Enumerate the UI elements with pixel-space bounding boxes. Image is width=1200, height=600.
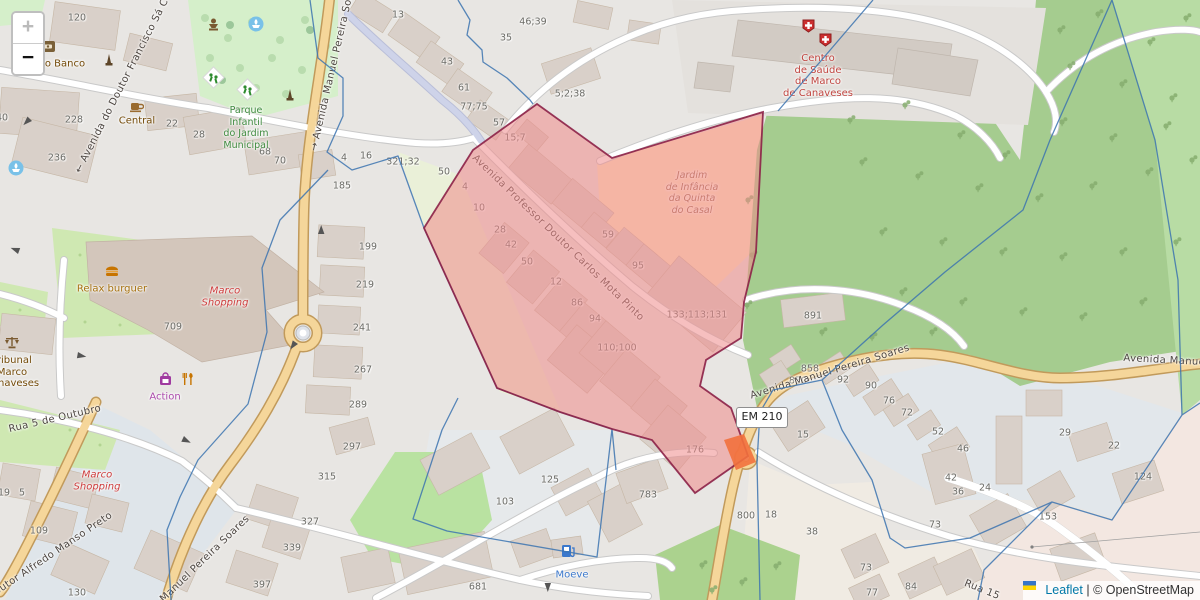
street-avenida-manuel-pereira-e: Avenida Manuel Pe (1123, 353, 1200, 369)
house-number: 68 (259, 147, 271, 158)
house-number: 199 (359, 242, 377, 253)
house-number: 35 (500, 33, 512, 44)
house-number: 120 (68, 13, 86, 24)
house-number: 28 (193, 130, 205, 141)
ukraine-flag-icon (1029, 586, 1042, 595)
street-avenida-carlos-mota-pinto: Avenida Professor Doutor Carlos Mota Pin… (470, 153, 646, 324)
house-number: 267 (354, 365, 372, 376)
house-number: 124 (1134, 472, 1152, 483)
house-number: 28 (494, 225, 506, 236)
street-avenida-manuel-pereira-n: → Avenida Manuel Pereira Soares (309, 0, 360, 152)
house-number: 4 (341, 153, 347, 164)
house-number: 86 (571, 298, 583, 309)
house-number: 29 (1059, 428, 1071, 439)
house-number: 339 (283, 543, 301, 554)
osm-link[interactable]: © OpenStreetMap (1093, 583, 1194, 597)
house-number: 52 (932, 427, 944, 438)
house-number: 13 (392, 10, 404, 21)
house-number: 19 (0, 488, 10, 499)
poi-novo-banco: vo Banco (39, 58, 85, 70)
street-rua-se: Rua 15 (963, 578, 1002, 600)
house-number: 315 (318, 472, 336, 483)
poi-tribunal: TribunalMarcoCanaveses (0, 355, 39, 390)
house-number: 241 (353, 323, 371, 334)
house-number: 133;113;131 (667, 310, 728, 321)
house-number: 42 (945, 473, 957, 484)
street-avenida-francisco-sa: ← Avenida do Doutor Francisco Sá C (73, 0, 171, 175)
poi-jardim-infancia: Jardimde Infânciada Quintado Casal (666, 170, 719, 216)
house-number: 219 (356, 280, 374, 291)
house-number: 73 (860, 563, 872, 574)
house-number: 12 (550, 277, 562, 288)
house-number: 77;75 (460, 102, 487, 113)
map-labels: 12040228222823668701346;3935436177;75575… (0, 0, 1200, 600)
house-number: 36 (952, 487, 964, 498)
house-number: 84 (905, 582, 917, 593)
poi-marco-shopping-1: MarcoShopping (202, 286, 249, 309)
house-number: 709 (164, 322, 182, 333)
house-number: 43 (441, 57, 453, 68)
house-number: 22 (166, 119, 178, 130)
house-number: 153 (1039, 512, 1057, 523)
street-avenida-manuel-pereira-c: Avenida Manuel Pereira Soares (749, 342, 911, 401)
zoom-control: + − (11, 11, 45, 76)
house-number: 10 (473, 203, 485, 214)
house-number: 185 (333, 181, 351, 192)
house-number: 327 (301, 517, 319, 528)
house-number: 24 (979, 483, 991, 494)
house-number: 109 (30, 526, 48, 537)
house-number: 103 (496, 497, 514, 508)
leaflet-link[interactable]: Leaflet (1045, 583, 1083, 597)
geojson-overlay (0, 0, 1200, 600)
house-number: 72 (901, 408, 913, 419)
house-number: 18 (765, 510, 777, 521)
house-number: 858 (801, 364, 819, 375)
house-number: 4 (462, 182, 468, 193)
house-number: 681 (469, 582, 487, 593)
house-number: 50 (438, 167, 450, 178)
zoom-in-button[interactable]: + (13, 13, 43, 44)
house-number: 77 (866, 588, 878, 599)
street-alfredo-manso-preto: Doutor Alfredo Manso Preto (0, 510, 115, 600)
house-number: 22 (1108, 441, 1120, 452)
house-number: 130 (68, 588, 86, 599)
house-number: 59 (602, 230, 614, 241)
house-number: 15;7 (504, 133, 525, 144)
road-shield-em210: EM 210 (736, 407, 788, 428)
house-number: 46;39 (519, 17, 546, 28)
poi-central: Central (119, 115, 155, 127)
house-number: 57 (493, 118, 505, 129)
house-number: 70 (274, 156, 286, 167)
map-tiles (0, 0, 1200, 600)
house-number: 397 (253, 580, 271, 591)
house-number: 40 (0, 113, 8, 124)
house-number: 95 (632, 261, 644, 272)
house-number: 321;32 (386, 157, 419, 168)
house-number: 176 (686, 445, 704, 456)
house-number: 891 (804, 311, 822, 322)
house-number: 5;2;38 (555, 89, 586, 100)
house-number: 92 (837, 375, 849, 386)
house-number: 61 (458, 83, 470, 94)
street-manuel-pereira-s: Manuel Pereira Soares (158, 513, 252, 600)
attribution-separator: | (1086, 583, 1089, 597)
house-number: 800 (737, 511, 755, 522)
street-rua-5-de-outubro: Rua 5 de Outubro (8, 403, 103, 435)
house-number: 76 (883, 396, 895, 407)
selection-polygon (424, 104, 763, 493)
house-number: 289 (349, 400, 367, 411)
house-number: 850 (789, 376, 807, 387)
house-number: 5 (19, 488, 25, 499)
zoom-out-button[interactable]: − (13, 44, 43, 74)
house-number: 16 (360, 151, 372, 162)
house-number: 236 (48, 153, 66, 164)
leaflet-map[interactable]: 12040228222823668701346;3935436177;75575… (0, 0, 1200, 600)
attribution-bar: Leaflet | © OpenStreetMap (1023, 581, 1200, 600)
poi-relax-burguer: Relax burguer (77, 283, 147, 295)
poi-moeve: Moeve (556, 569, 589, 581)
house-number: 50 (521, 257, 533, 268)
house-number: 38 (806, 527, 818, 538)
house-number: 15 (797, 430, 809, 441)
house-number: 42 (505, 240, 517, 251)
house-number: 90 (865, 381, 877, 392)
house-number: 110;100 (597, 343, 636, 354)
house-number: 94 (589, 314, 601, 325)
poi-parque-infantil: ParqueInfantildo JardimMunicipal (223, 105, 268, 151)
house-number: 228 (65, 115, 83, 126)
poi-marco-shopping-2: MarcoShopping (74, 470, 121, 493)
house-number: 125 (541, 475, 559, 486)
house-number: 297 (343, 442, 361, 453)
poi-centro-saude: Centrode Saúdede Marcode Canaveses (783, 53, 853, 99)
house-number: 783 (639, 490, 657, 501)
house-number: 46 (957, 444, 969, 455)
house-number: 73 (929, 520, 941, 531)
poi-action: Action (149, 391, 180, 403)
